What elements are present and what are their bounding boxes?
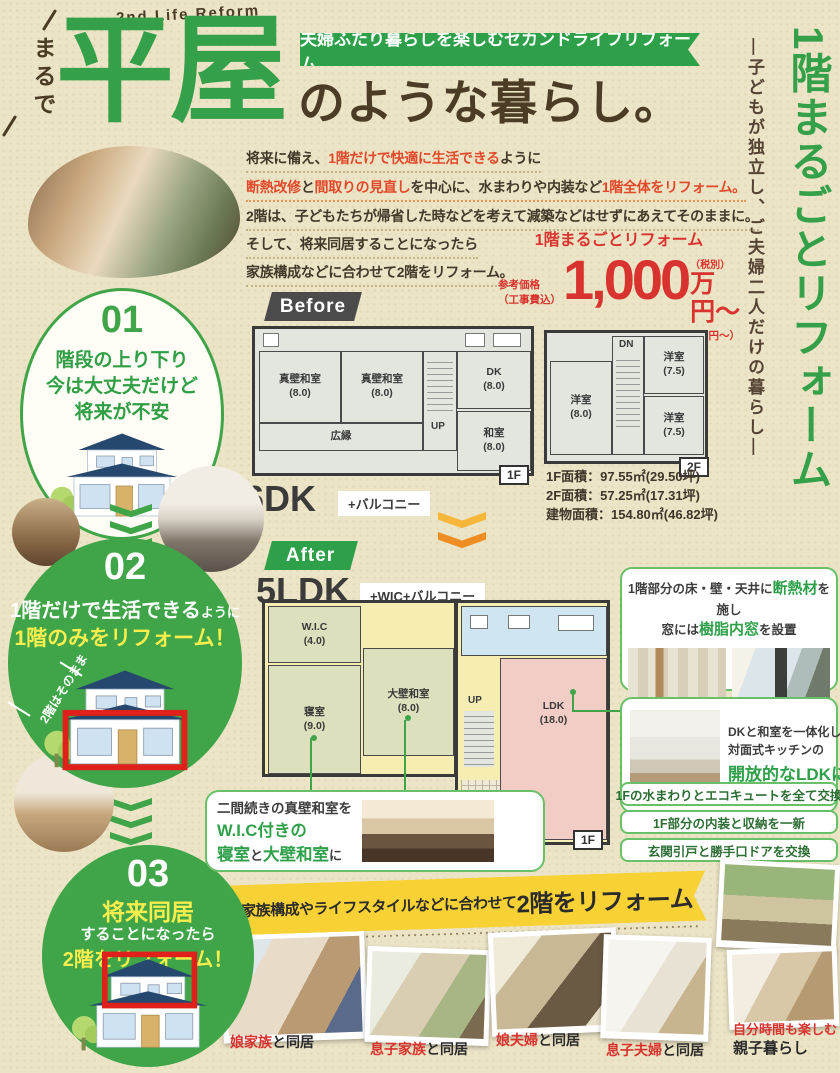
price-amount: 1,000 — [563, 252, 688, 308]
price-note-2: （工事費込） — [498, 293, 561, 308]
connector-line-bedroom — [310, 738, 312, 790]
intro-line-4: そして、将来同居することになったら — [246, 234, 478, 259]
after-floor-badge: 1F — [573, 830, 603, 850]
up-label: UP — [431, 421, 445, 432]
floor-badge-1f: 1F — [499, 465, 529, 485]
stairs-down — [616, 355, 640, 429]
step-2-circle: 02 1階だけで生活できるように 1階のみをリフォーム！ 2階はそのまま — [8, 538, 242, 788]
headline-suffix: のような暮らし。 — [298, 64, 682, 133]
price-label: 1階まるごとリフォーム — [498, 226, 740, 250]
banner-highlight: 2階をリフォーム — [516, 878, 694, 919]
room-yoshitsu-8: 洋室(8.0) — [550, 361, 612, 455]
area-line-3: 建物面積：154.80㎡(46.82坪) — [546, 506, 718, 525]
room-shinkabe-2: 真壁和室(8.0) — [341, 351, 423, 423]
bedroom-callout-line-3: 寝室と大壁和室に — [217, 841, 352, 865]
before-floorplan-2f: 洋室(8.0) DN 洋室(7.5) 洋室(7.5) 2F — [544, 330, 708, 464]
area-line-2: 2F面積：57.25㎡(17.31坪) — [546, 487, 718, 506]
step-3-circle: 03 将来同居 することになったら 2階をリフォーム！ — [42, 845, 254, 1067]
intro-l2-b: を中心に、水まわりや内装など — [410, 179, 601, 195]
bedroom-callout: 二間続きの真壁和室を W.I.C付きの 寝室と大壁和室に — [205, 790, 545, 872]
caption-son-family: 息子家族と同居 — [370, 1039, 468, 1059]
side-subtitle-vertical: ―子どもが独立し、ご夫婦二人だけの暮らし― — [742, 38, 767, 538]
caption-daughter-couple: 娘夫婦と同居 — [496, 1030, 580, 1050]
after-up-label: UP — [468, 695, 482, 706]
headline-prefix: まるで — [26, 36, 60, 146]
price-tax-note: （税別） — [690, 256, 740, 271]
after-floorplan-left: W.I.C(4.0) 寝室(9.0) 大壁和室(8.0) — [262, 600, 457, 777]
feature-pill-2: 1F部分の内装と収納を一新 — [620, 810, 838, 834]
insulation-t1: 1階部分の床・壁・天井に — [628, 582, 772, 596]
room-yoshitsu-75b: 洋室(7.5) — [644, 396, 704, 455]
room-washitsu: 和室(8.0) — [457, 411, 531, 471]
room-engawa: 広縁 — [259, 423, 423, 451]
price-unit-col: （税別） 万円〜 — [690, 256, 740, 326]
step-2-number: 02 — [8, 548, 242, 586]
side-title-vertical: 1階まるごとリフォーム — [778, 26, 839, 536]
accent-slash-bottom — [2, 115, 17, 137]
step-2-line-1-main: 1階だけで生活できる — [10, 600, 201, 622]
ldk-t1: DKと和室を一体化して — [728, 725, 840, 739]
price-notes: 参考価格 （工事費込） — [498, 278, 561, 307]
renovated-bedroom-photo — [362, 800, 494, 862]
room-sanitary — [461, 606, 607, 656]
subtitle-ribbon: 夫婦ふたり暮らしを楽しむセカンドライフリフォーム — [300, 33, 700, 66]
banner-text: 家族構成やライフスタイルなどに合わせて — [241, 891, 517, 921]
step-1-line-1: 階段の上り下り — [23, 345, 221, 372]
stairs-up — [427, 357, 453, 415]
step-3-line-1: 将来同居 — [42, 893, 254, 927]
intro-l2-h1: 断熱改修 — [246, 179, 301, 195]
price-block: 1階まるごとリフォーム 参考価格 （工事費込） 1,000 （税別） 万円〜 （… — [498, 226, 740, 343]
down-chevrons-2 — [110, 798, 152, 849]
intro-l2-h3: 1階全体をリフォーム。 — [602, 179, 746, 195]
bedroom-callout-line-1: 二間続きの真壁和室を — [217, 797, 352, 817]
before-badge: Before — [264, 292, 362, 321]
dn-label: DN — [619, 339, 633, 350]
step-3-line-2: することになったら — [42, 923, 254, 944]
house-illustration-3 — [42, 951, 254, 1057]
price-row: 参考価格 （工事費込） 1,000 （税別） 万円〜 — [498, 252, 740, 326]
step-2-line-2: 1階のみをリフォーム！ — [8, 622, 242, 652]
bedroom-callout-green-1: 寝室 — [217, 846, 250, 864]
step-1-line-2: 今は大丈夫だけど — [23, 371, 221, 398]
bedroom-callout-line-2: W.I.C付きの — [217, 817, 352, 841]
intro-l1-highlight: 1階だけで快適に生活できる — [328, 150, 500, 166]
insulation-highlight-1: 断熱材 — [772, 580, 817, 597]
step-1-line-3: 将来が不安 — [23, 397, 221, 424]
bedroom-callout-dark-1: と — [250, 848, 263, 863]
price-note-1: 参考価格 — [498, 278, 561, 293]
bedroom-callout-text: 二間続きの真壁和室を W.I.C付きの 寝室と大壁和室に — [217, 797, 352, 865]
area-summary: 1F面積：97.55㎡(29.50坪) 2F面積：57.25㎡(17.31坪) … — [546, 468, 718, 525]
couple-dining-photo — [28, 146, 240, 278]
caption-son-couple: 息子夫婦と同居 — [606, 1040, 704, 1060]
photo-parent-child — [727, 946, 840, 1030]
area-line-1: 1F面積：97.55㎡(29.50坪) — [546, 468, 718, 487]
after-badge: After — [264, 541, 358, 570]
connector-line-ldk-h — [572, 710, 620, 712]
room-wic: W.I.C(4.0) — [268, 606, 361, 663]
photo-porch-couple — [716, 859, 840, 953]
step-2-line-1-small: ように — [201, 605, 240, 620]
connector-line-washitsu — [404, 720, 406, 790]
reform-flyer: 2nd Life Reform まるで 平屋 夫婦ふたり暮らしを楽しむセカンドラ… — [0, 0, 840, 1073]
room-bedroom: 寝室(9.0) — [268, 665, 361, 774]
fixture — [465, 333, 485, 347]
before-after-arrow — [438, 512, 486, 552]
room-yoshitsu-75a: 洋室(7.5) — [644, 336, 704, 394]
step-2-line-1: 1階だけで生活できるように — [8, 594, 242, 623]
room-dk: DK(8.0) — [457, 351, 531, 409]
intro-line-1: 将来に備え、1階だけで快適に生活できるように — [246, 148, 541, 173]
feature-pill-1: 1Fの水まわりとエコキュートを全て交換 — [620, 782, 838, 806]
insulation-highlight-2: 樹脂内窓 — [699, 621, 759, 638]
before-plan-suffix: +バルコニー — [338, 491, 430, 516]
inner-window-photo — [732, 648, 830, 700]
intro-line-2: 断熱改修と間取りの見直しを中心に、水まわりや内装など1階全体をリフォーム。 — [246, 177, 746, 202]
headline-main: 平屋 — [56, 10, 284, 134]
intro-l1-a: 将来に備え、 — [246, 150, 328, 166]
accent-slash-top — [42, 9, 57, 31]
step-1-number: 01 — [23, 301, 221, 339]
ldk-text: DKと和室を一体化して 対面式キッチンの 開放的なLDKに — [728, 723, 840, 788]
ldk-t2: 対面式キッチンの — [728, 743, 824, 757]
insulation-t4: 窓には — [661, 623, 699, 637]
insulation-photos — [628, 648, 830, 700]
after-stairs — [464, 711, 494, 767]
intro-l1-b: ように — [500, 150, 541, 166]
caption-parent-child: 自分時間も楽しむ親子暮らし — [733, 1022, 837, 1058]
connector-line-ldk-v — [572, 690, 574, 710]
photo-son-couple — [600, 934, 712, 1042]
insulation-t6: を設置 — [759, 623, 797, 637]
bedroom-callout-green-2: 大壁和室 — [263, 846, 329, 864]
price-unit: 万円〜 — [690, 271, 740, 326]
intro-l2-h2: 間取りの見直し — [315, 179, 411, 195]
bedroom-callout-dark-2: に — [329, 848, 342, 863]
insulation-text: 1階部分の床・壁・天井に断熱材を施し 窓には樹脂内窓を設置 — [628, 578, 830, 642]
fixture — [493, 333, 521, 347]
room-okabe-washitsu: 大壁和室(8.0) — [363, 648, 454, 756]
photo-son-family — [364, 946, 491, 1046]
room-shinkabe-1: 真壁和室(8.0) — [259, 351, 341, 423]
intro-l2-a: と — [301, 179, 315, 195]
fixture — [263, 333, 279, 347]
insulation-callout: 1階部分の床・壁・天井に断熱材を施し 窓には樹脂内窓を設置 — [620, 567, 838, 691]
house-illustration-2 — [8, 662, 242, 774]
before-floorplan-1f: 真壁和室(8.0) 真壁和室(8.0) 広縁 UP DK(8.0) 和室(8.0… — [252, 326, 534, 476]
insulation-wall-photo — [628, 648, 726, 700]
intro-line-5: 家族構成などに合わせて2階をリフォーム。 — [246, 262, 513, 287]
